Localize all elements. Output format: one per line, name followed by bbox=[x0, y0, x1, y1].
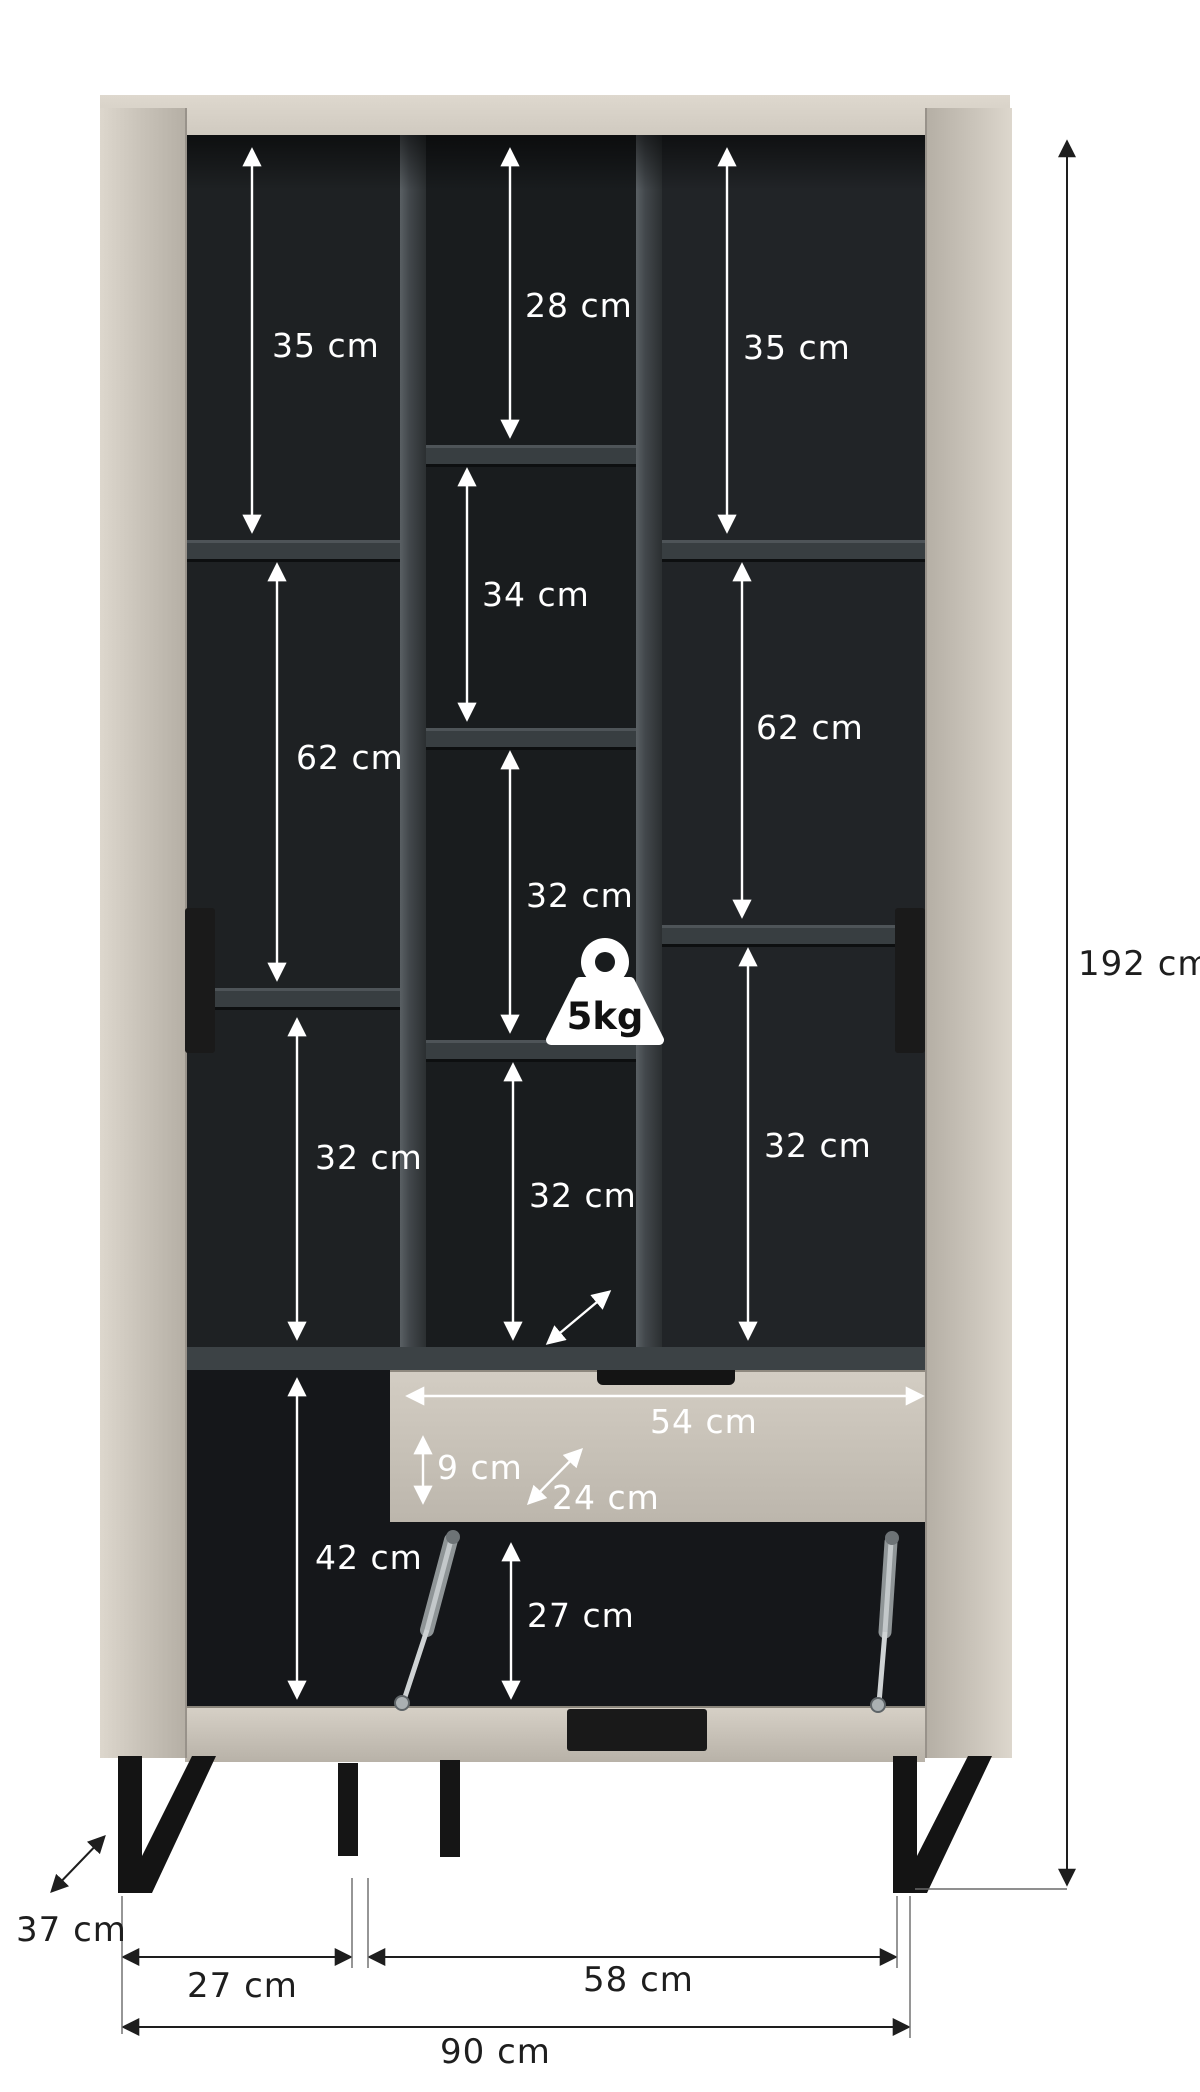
dim-label-depth-37: 37 cm bbox=[16, 1910, 127, 1950]
dim-label-width-58: 58 cm bbox=[583, 1960, 694, 2000]
dim-label-width-27: 27 cm bbox=[187, 1966, 298, 2006]
shelf bbox=[426, 1040, 636, 1062]
dim-label-right-35: 35 cm bbox=[743, 328, 851, 367]
dim-label-left-32: 32 cm bbox=[315, 1138, 423, 1177]
dim-label-right-32: 32 cm bbox=[764, 1126, 872, 1165]
shelf bbox=[426, 728, 636, 750]
dim-label-mid-32b: 32 cm bbox=[529, 1176, 637, 1215]
middle-leg bbox=[440, 1760, 460, 1857]
middle-leg bbox=[338, 1763, 358, 1856]
dim-label-left-42: 42 cm bbox=[315, 1538, 423, 1577]
left-loop-leg bbox=[118, 1756, 216, 1893]
drawer-handle bbox=[597, 1370, 735, 1385]
left-door-open bbox=[100, 108, 187, 1758]
dim-label-height-192: 192 cm bbox=[1078, 944, 1200, 984]
dim-label-mid-34: 34 cm bbox=[482, 575, 590, 614]
flap-door-handle bbox=[567, 1709, 707, 1751]
dim-label-right-62: 62 cm bbox=[756, 708, 864, 747]
shelf bbox=[185, 540, 400, 562]
shelf bbox=[426, 445, 636, 467]
right-loop-leg bbox=[893, 1756, 992, 1893]
right-door-handle bbox=[895, 908, 925, 1053]
left-door-handle bbox=[185, 908, 215, 1053]
interior-floor bbox=[185, 1347, 925, 1370]
extension-lines bbox=[122, 1878, 1067, 2038]
shelf bbox=[662, 925, 925, 947]
shelf bbox=[662, 540, 925, 562]
flap-door-open bbox=[185, 1706, 925, 1762]
dim-label-left-62: 62 cm bbox=[296, 738, 404, 777]
dim-label-drawer-24: 24 cm bbox=[552, 1478, 660, 1517]
cabinet-top-panel bbox=[100, 95, 1010, 138]
dim-label-left-35: 35 cm bbox=[272, 326, 380, 365]
vertical-divider-left bbox=[400, 135, 426, 1370]
right-door-open bbox=[925, 108, 1012, 1758]
shelf bbox=[185, 988, 400, 1010]
vertical-divider-right bbox=[636, 135, 662, 1370]
dim-label-flap-27: 27 cm bbox=[527, 1596, 635, 1635]
dim-label-mid-32a: 32 cm bbox=[526, 876, 634, 915]
dim-label-drawer-54: 54 cm bbox=[650, 1402, 758, 1441]
dimension-diagram: 5kg bbox=[0, 0, 1200, 2092]
dim-label-width-90: 90 cm bbox=[440, 2032, 551, 2072]
dim-label-mid-28: 28 cm bbox=[525, 286, 633, 325]
drawer-front bbox=[390, 1370, 930, 1522]
dim-label-drawer-9: 9 cm bbox=[437, 1448, 523, 1487]
arrow-depth-37 bbox=[52, 1837, 104, 1891]
